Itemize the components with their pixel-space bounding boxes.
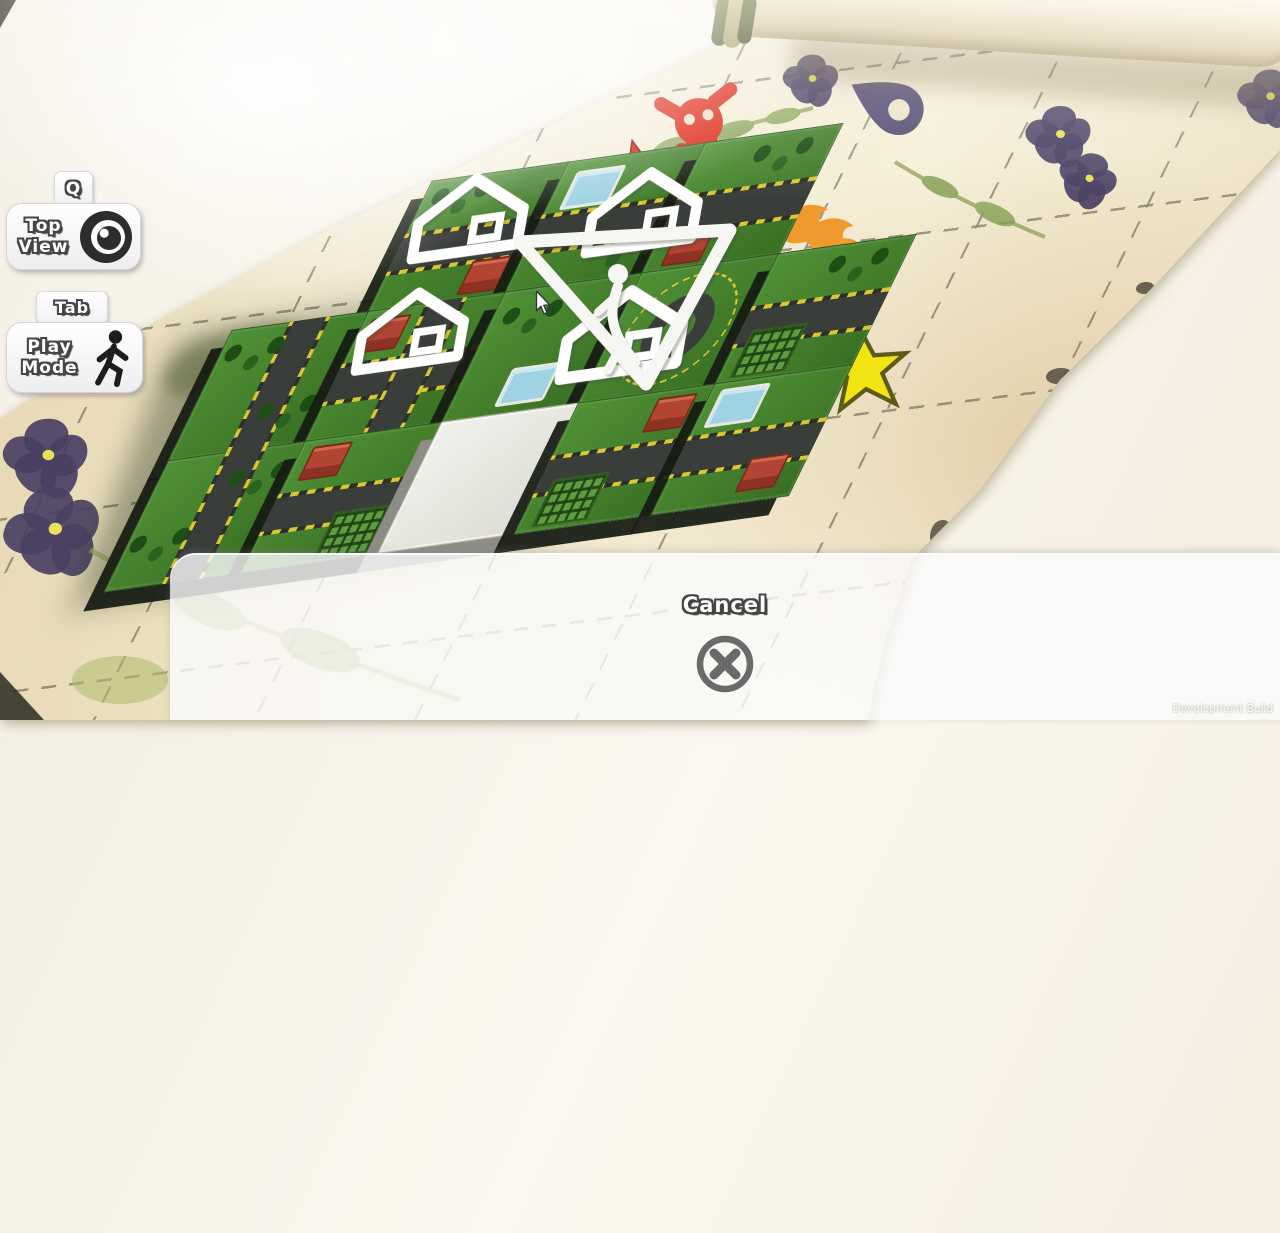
keycap-tab-label: Tab [55, 298, 89, 317]
cancel-panel: Cancel [170, 553, 1280, 720]
development-build-watermark: Development Build [1173, 703, 1273, 715]
cancel-label: Cancel [170, 593, 1280, 617]
mouse-cursor [532, 291, 554, 317]
play-mode-label-line2: Mode [7, 358, 92, 379]
top-view-label-line2: View [7, 237, 80, 258]
eye-icon [80, 211, 132, 263]
keycap-q: Q [54, 171, 93, 207]
keycap-tab: Tab [36, 291, 108, 324]
keycap-q-label: Q [66, 179, 81, 199]
walking-person-icon [92, 329, 136, 387]
top-view-label-line1: Top [7, 216, 80, 237]
play-mode-button[interactable]: Play Mode [6, 322, 143, 393]
top-view-button[interactable]: Top View [6, 203, 141, 270]
play-mode-label-line1: Play [7, 337, 92, 358]
cancel-x-icon[interactable] [694, 633, 756, 695]
